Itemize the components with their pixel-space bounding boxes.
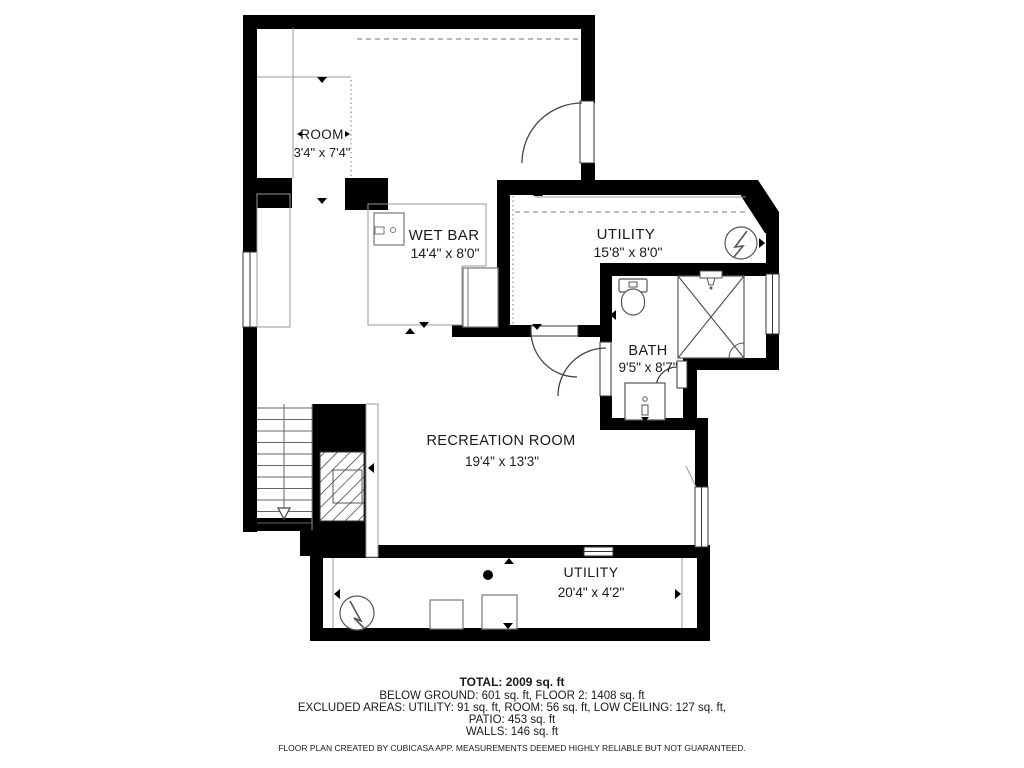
left-counter [257, 194, 290, 327]
summary-breakdown: BELOW GROUND: 601 sq. ft, FLOOR 2: 1408 … [379, 690, 645, 702]
door-bath-b [558, 342, 611, 396]
wet-bar-appliance [463, 268, 498, 327]
room-dims-bath: 9'5" x 8'7" [618, 360, 677, 375]
window-right-wall-lower [695, 487, 708, 547]
room-dims-wet-bar: 14'4" x 8'0" [411, 245, 480, 261]
room-dims-utility-bottom: 20'4" x 4'2" [558, 585, 625, 600]
floor-drain-dot [483, 570, 493, 580]
window-right-wall-upper [766, 274, 779, 334]
footer-disclaimer: FLOOR PLAN CREATED BY CUBICASA APP. MEAS… [278, 743, 745, 753]
door-top-right [522, 101, 594, 163]
room-dims-recreation: 19'4" x 13'3" [465, 454, 539, 469]
room-label-bath: BATH [628, 343, 667, 359]
window-bottom-wall [584, 547, 613, 556]
shower [678, 271, 744, 358]
room-dims-room: 3'4" x 7'4" [294, 145, 351, 160]
summary-excluded-1: EXCLUDED AREAS: UTILITY: 91 sq. ft, ROOM… [298, 702, 726, 714]
water-heater-icon [340, 596, 374, 630]
furnace-icon [725, 227, 757, 259]
window-left-wall [243, 252, 257, 327]
area-summary: TOTAL: 2009 sq. ft BELOW GROUND: 601 sq.… [278, 675, 745, 753]
fireplace [312, 404, 378, 558]
summary-total: TOTAL: 2009 sq. ft [460, 675, 565, 689]
room-label-utility-top: UTILITY [597, 226, 656, 243]
staircase [257, 404, 312, 523]
bath-vanity-sink [625, 383, 665, 422]
room-label-wet-bar: WET BAR [409, 227, 480, 244]
door-hall-to-bath-a [531, 326, 578, 377]
window-reveal-line [686, 466, 696, 487]
floor-plan-canvas: ROOM 3'4" x 7'4" WET BAR 14'4" x 8'0" UT… [0, 0, 1024, 768]
toilet [619, 279, 647, 315]
floor-plan-page: ROOM 3'4" x 7'4" WET BAR 14'4" x 8'0" UT… [0, 0, 1024, 768]
utility-appliance-1 [430, 600, 463, 629]
stair-down-arrow [278, 508, 290, 519]
room-dims-utility-top: 15'8" x 8'0" [594, 244, 663, 260]
room-label-room: ROOM [300, 127, 344, 142]
fireplace-hearth-hatch [320, 452, 364, 521]
wet-bar-sink [374, 213, 404, 245]
room-label-recreation: RECREATION ROOM [426, 433, 575, 449]
summary-excluded-2: PATIO: 453 sq. ft [469, 714, 556, 726]
room-label-utility-bottom: UTILITY [564, 564, 619, 580]
fireplace-face [366, 404, 378, 557]
summary-walls: WALLS: 146 sq. ft [466, 726, 559, 738]
angled-wall [741, 180, 779, 233]
